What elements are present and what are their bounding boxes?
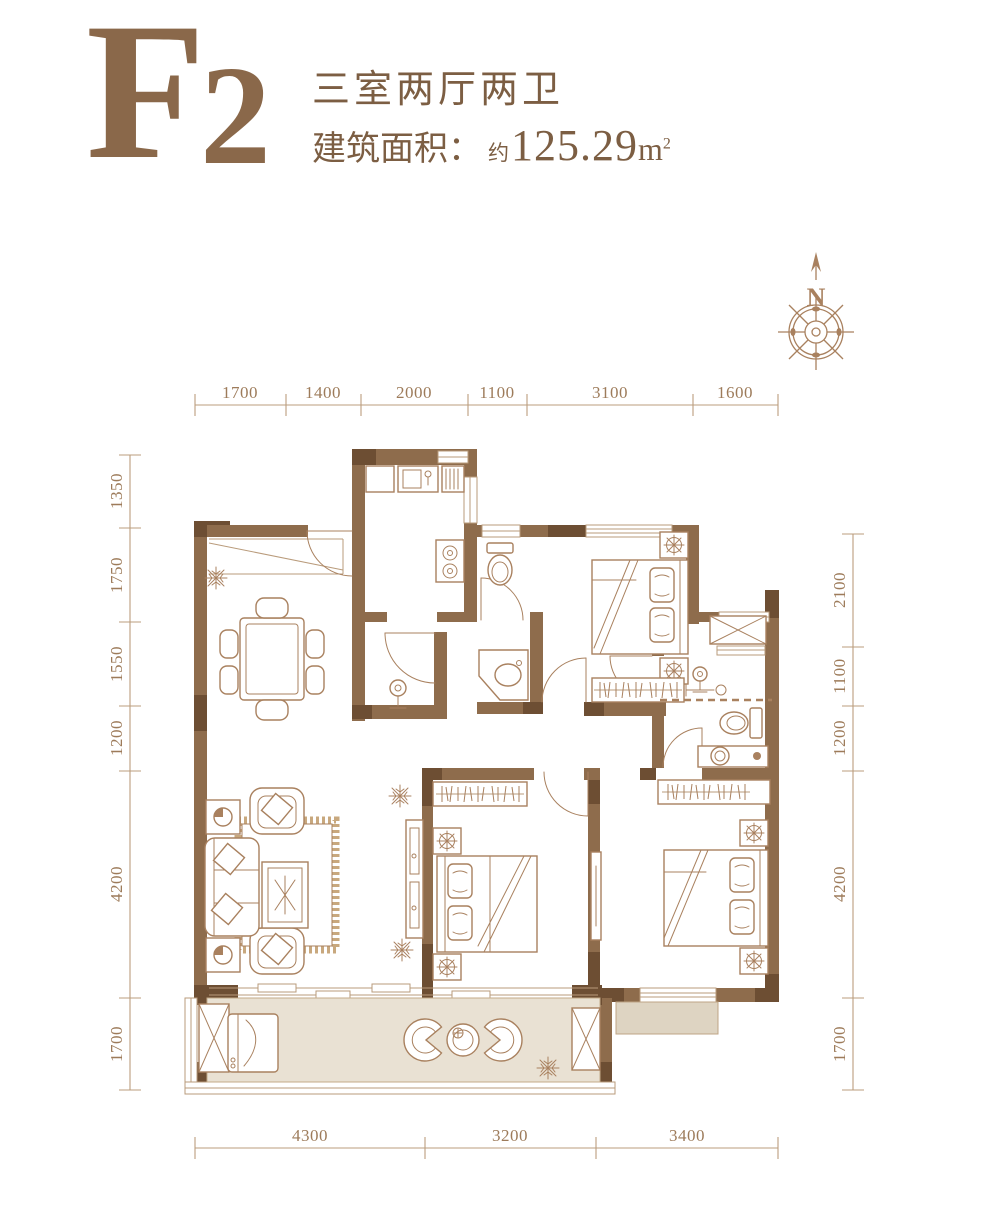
tv-cabinet-icon xyxy=(406,820,423,938)
sliding-panel-icon xyxy=(591,852,601,940)
pillow-icon xyxy=(448,906,472,940)
living-bay-window-icon xyxy=(209,539,343,574)
floorplan-drawing: N 1700 1400 2000 xyxy=(0,0,1000,1227)
nightstand-lamp-icon xyxy=(740,820,768,846)
sofa-icon xyxy=(205,838,259,936)
dim-label: 4200 xyxy=(830,866,849,902)
kitchen xyxy=(366,466,464,582)
toilet-icon xyxy=(720,708,762,738)
bath1-window-icon xyxy=(482,525,520,537)
dim-label: 1200 xyxy=(107,720,126,756)
dim-label: 1750 xyxy=(107,557,126,593)
dim-label: 1350 xyxy=(107,473,126,509)
dim-label: 1400 xyxy=(305,383,341,402)
snowflake-icon xyxy=(391,939,413,961)
side-table-lamp-icon xyxy=(206,938,240,972)
dimension-right: 2100 1100 1200 4200 1700 xyxy=(830,534,864,1090)
bedroom3-door-icon xyxy=(663,728,702,767)
round-table-icon xyxy=(447,1024,479,1056)
pillow-icon xyxy=(650,608,674,642)
bedroom1-door-icon xyxy=(542,658,586,702)
duct-shaft-icon xyxy=(710,616,766,644)
washing-machine-icon xyxy=(228,1014,278,1072)
dim-label: 1700 xyxy=(107,1026,126,1062)
side-table-lamp-icon xyxy=(206,800,240,834)
corner-basin-icon xyxy=(479,650,528,700)
dining-chair-icon xyxy=(256,700,288,720)
gas-stove-icon xyxy=(436,540,464,582)
kitchen-window-icon xyxy=(438,451,468,463)
bedroom3-window-icon xyxy=(640,988,716,1002)
nightstand-lamp-icon xyxy=(433,954,461,980)
living-room xyxy=(205,788,423,974)
dim-label: 1100 xyxy=(479,383,514,402)
dining-chair-icon xyxy=(220,666,238,694)
dim-label: 1700 xyxy=(222,383,258,402)
dim-label: 3400 xyxy=(669,1126,705,1145)
dining-table-icon xyxy=(240,618,304,700)
dining-chair-icon xyxy=(220,630,238,658)
armchair-icon xyxy=(250,928,304,974)
balcony-sliding-door-icon xyxy=(209,984,598,999)
dim-label: 2100 xyxy=(830,572,849,608)
entry-door-icon xyxy=(307,531,352,576)
pillow-icon xyxy=(650,568,674,602)
dimension-left: 1350 1750 1550 1200 4200 1700 xyxy=(107,455,141,1090)
dining-area xyxy=(220,598,324,720)
armchair-icon xyxy=(250,788,304,834)
shower-icon xyxy=(390,680,406,708)
dimension-bottom: 4300 3200 3400 xyxy=(195,1126,778,1159)
ac-platform xyxy=(616,1002,718,1034)
coffee-table-icon xyxy=(262,862,308,928)
pillow-icon xyxy=(730,900,754,934)
dining-chair-icon xyxy=(306,666,324,694)
balcony-xbox-right-icon xyxy=(572,1008,600,1070)
dimension-top: 1700 1400 2000 1100 3100 1600 xyxy=(195,383,778,416)
dim-label: 1550 xyxy=(107,646,126,682)
kitchen-sink-icon xyxy=(398,466,438,492)
dim-label: 3200 xyxy=(492,1126,528,1145)
dim-label: 3100 xyxy=(592,383,628,402)
dining-chair-icon xyxy=(306,630,324,658)
snowflake-icon xyxy=(537,1057,559,1079)
bedroom-1 xyxy=(592,532,688,702)
dim-label: 1600 xyxy=(717,383,753,402)
counter-icon xyxy=(366,466,394,492)
shower-icon xyxy=(693,667,707,692)
dim-label: 1700 xyxy=(830,1026,849,1062)
bedroom-2 xyxy=(433,782,601,980)
dim-label: 1100 xyxy=(830,658,849,693)
dim-label: 4300 xyxy=(292,1126,328,1145)
pillow-icon xyxy=(448,864,472,898)
dim-label: 2000 xyxy=(396,383,432,402)
shower-room-door-icon xyxy=(385,633,435,683)
drain-rack-icon xyxy=(442,466,464,492)
wardrobe-icon xyxy=(433,782,527,806)
toilet-icon xyxy=(487,543,513,585)
wash-basin-icon xyxy=(698,746,768,767)
towel-bar-icon xyxy=(686,684,726,696)
snowflake-icon xyxy=(205,567,227,589)
compass-rose: N xyxy=(778,252,854,370)
nightstand-lamp-icon xyxy=(660,532,688,558)
wardrobe-icon xyxy=(592,678,684,702)
dim-label: 1200 xyxy=(830,720,849,756)
bath2-window-icon xyxy=(717,646,765,655)
snowflake-icon xyxy=(389,785,411,807)
pillow-icon xyxy=(730,858,754,892)
wardrobe-icon xyxy=(658,780,770,804)
bedroom-3 xyxy=(658,780,770,974)
balcony-xbox-left-icon xyxy=(199,1004,229,1072)
dim-label: 4200 xyxy=(107,866,126,902)
bedroom1-window-icon xyxy=(586,525,672,537)
bedroom2-door-icon xyxy=(544,772,588,816)
dining-chair-icon xyxy=(256,598,288,618)
floorplan-page: F 2 三室两厅两卫 建筑面积： 约 125.29 m2 xyxy=(0,0,1000,1227)
nightstand-lamp-icon xyxy=(740,948,768,974)
nightstand-lamp-icon xyxy=(433,828,461,854)
kitchen-side-window-icon xyxy=(464,477,477,523)
